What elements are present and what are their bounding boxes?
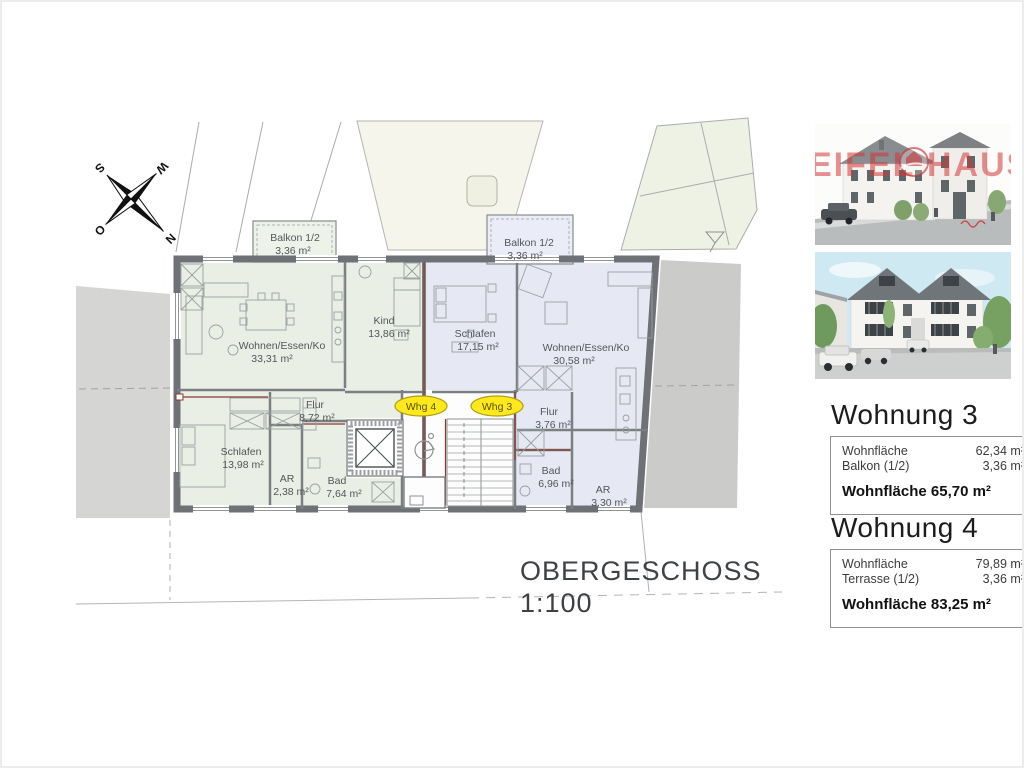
room-label-whg4-flur: Flur bbox=[306, 399, 325, 411]
compass-south-label: S bbox=[92, 160, 108, 176]
building-rendering-front: EIFEL HAUS bbox=[815, 124, 1011, 245]
room-area-whg3-schlafen: 17,15 m² bbox=[457, 341, 499, 353]
compass-icon: N S W O bbox=[61, 128, 211, 278]
info-label: Wohnfläche bbox=[842, 444, 908, 459]
balcony4-area: 3,36 m² bbox=[275, 245, 311, 257]
info-row: Wohnfläche 79,89 m² bbox=[842, 557, 1024, 572]
room-label-whg4-kind: Kind bbox=[373, 315, 394, 327]
room-area-whg3-wohnen: 30,58 m² bbox=[553, 355, 595, 367]
room-label-whg3-wohnen: Wohnen/Essen/Ko bbox=[543, 342, 630, 354]
brand-right: HAUS bbox=[927, 146, 1011, 184]
info-row: Terrasse (1/2) 3,36 m² bbox=[842, 572, 1024, 587]
apartment-fills bbox=[177, 259, 656, 509]
room-area-whg4-wohnen: 33,31 m² bbox=[251, 353, 293, 365]
info-value: 62,34 m² bbox=[976, 444, 1024, 459]
info-label: Terrasse (1/2) bbox=[842, 572, 919, 587]
balcony3-area: 3,36 m² bbox=[507, 250, 543, 262]
whg4-tag-label: Whg 4 bbox=[406, 401, 437, 413]
room-area-whg4-ar: 2,38 m² bbox=[273, 486, 309, 498]
room-label-whg4-schlafen: Schlafen bbox=[221, 446, 262, 458]
plan-title: OBERGESCHOSS 1:100 bbox=[520, 556, 762, 619]
room-area-whg3-ar: 3,30 m² bbox=[591, 497, 627, 509]
room-label-whg4-bad: Bad bbox=[328, 475, 347, 487]
room-label-whg4-wohnen: Wohnen/Essen/Ko bbox=[239, 340, 326, 352]
whg3-tag-label: Whg 3 bbox=[482, 401, 513, 413]
room-label-whg3-flur: Flur bbox=[540, 406, 559, 418]
info-row: Balkon (1/2) 3,36 m² bbox=[842, 459, 1024, 474]
balcony4-name: Balkon 1/2 bbox=[270, 232, 320, 244]
person bbox=[934, 208, 938, 217]
staircase bbox=[447, 419, 513, 506]
floorplan-drawing: Whg 4 Whg 3 Balkon 1/2 3,36 m² Balkon 1/… bbox=[0, 0, 1024, 768]
bush bbox=[894, 200, 912, 220]
balcony3-name: Balkon 1/2 bbox=[504, 237, 554, 249]
floor-title: OBERGESCHOSS bbox=[520, 556, 762, 587]
scale-label: 1:100 bbox=[520, 588, 762, 619]
person bbox=[993, 344, 997, 354]
info-label: Balkon (1/2) bbox=[842, 459, 909, 474]
room-label-whg3-ar: AR bbox=[596, 484, 611, 496]
room-area-whg4-schlafen: 13,98 m² bbox=[222, 459, 264, 471]
info-value: 3,36 m² bbox=[983, 572, 1024, 587]
building-rendering-rear bbox=[815, 252, 1011, 379]
room-area-whg4-flur: 8,72 m² bbox=[299, 412, 335, 424]
room-label-whg3-bad: Bad bbox=[542, 465, 561, 477]
wohnung4-info-box: Wohnfläche 79,89 m² Terrasse (1/2) 3,36 … bbox=[830, 549, 1024, 628]
wohnung3-info-box: Wohnfläche 62,34 m² Balkon (1/2) 3,36 m²… bbox=[830, 436, 1024, 515]
room-label-whg3-schlafen: Schlafen bbox=[455, 328, 496, 340]
info-value: 3,36 m² bbox=[983, 459, 1024, 474]
compass-north-label: N bbox=[163, 231, 179, 247]
room-area-whg3-flur: 3,76 m² bbox=[535, 419, 571, 431]
brand-logo-icon bbox=[900, 148, 928, 176]
room-area-whg3-bad: 6,96 m² bbox=[538, 478, 574, 490]
wohnung4-heading: Wohnung 4 bbox=[831, 512, 978, 544]
info-value: 79,89 m² bbox=[976, 557, 1024, 572]
info-row: Wohnfläche 62,34 m² bbox=[842, 444, 1024, 459]
room-label-whg4-ar: AR bbox=[280, 473, 295, 485]
wohnung4-total: Wohnfläche 83,25 m² bbox=[842, 596, 1024, 613]
room-area-whg4-kind: 13,86 m² bbox=[368, 328, 410, 340]
wohnung3-total: Wohnfläche 65,70 m² bbox=[842, 483, 1024, 500]
room-area-whg4-bad: 7,64 m² bbox=[326, 488, 362, 500]
info-label: Wohnfläche bbox=[842, 557, 908, 572]
wohnung3-heading: Wohnung 3 bbox=[831, 399, 978, 431]
